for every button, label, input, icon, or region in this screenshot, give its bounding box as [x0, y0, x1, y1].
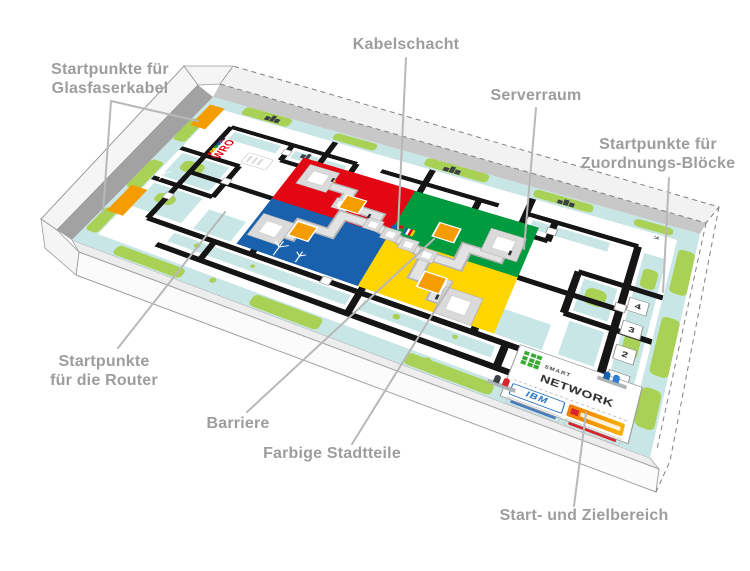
label-kabelschacht: Kabelschacht — [326, 35, 486, 54]
label-barriere: Barriere — [168, 414, 308, 433]
label-serverraum: Serverraum — [456, 86, 616, 105]
label-router: Startpunktefür die Router — [14, 352, 194, 390]
label-zielbereich: Start- und Zielbereich — [474, 506, 694, 525]
label-zuordnung: Startpunkte fürZuordnungs-Blöcke — [566, 135, 750, 173]
label-glasfaserkabel: Startpunkte fürGlasfaserkabel — [20, 60, 200, 98]
label-stadtteile: Farbige Stadtteile — [252, 444, 412, 463]
smart-network-logo — [520, 351, 542, 370]
annotated-field-diagram: ✈ WRO 4 3 2 1 SMART NETWORK — [0, 0, 750, 571]
